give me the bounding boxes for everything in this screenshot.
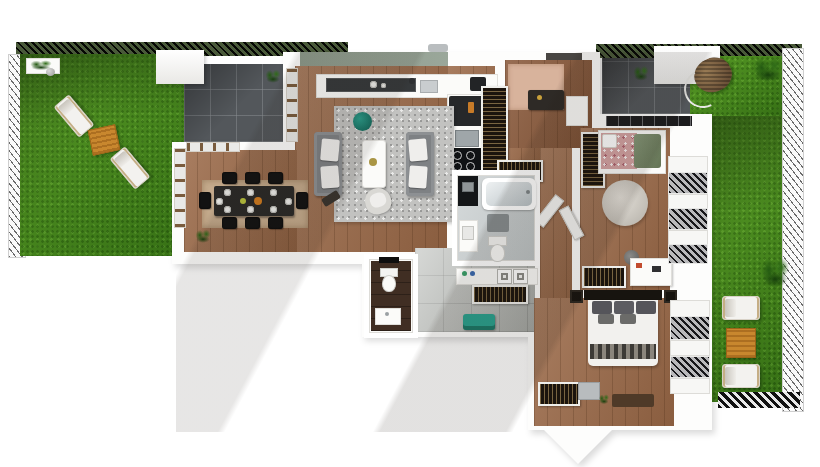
- dining-chair: [268, 172, 283, 184]
- dining-chair: [245, 217, 260, 229]
- fridge: [449, 96, 483, 126]
- laundry-item: [462, 271, 467, 276]
- window-sill: [670, 378, 710, 394]
- place-setting: [285, 198, 292, 205]
- dining-plant: [194, 228, 212, 244]
- round-shaggy-rug: [602, 180, 648, 226]
- dining-chair: [222, 172, 237, 184]
- green-blanket: [634, 134, 661, 168]
- wardrobe-rail-row: [472, 285, 528, 304]
- wc-basin: [375, 308, 401, 325]
- striped-throw: [590, 344, 656, 359]
- sink-second: [455, 130, 479, 147]
- sofa-cushion: [320, 138, 340, 161]
- laundry-item: [470, 271, 475, 276]
- vanity-basin: [462, 182, 474, 192]
- patio-glass-door: [286, 68, 298, 142]
- place-setting: [247, 206, 254, 213]
- desk-item: [636, 263, 642, 268]
- wc-faucet: [385, 312, 389, 316]
- front-door: [546, 53, 582, 60]
- nightstand: [570, 290, 583, 303]
- place-setting: [224, 189, 231, 196]
- pillow: [614, 301, 634, 314]
- kids-pillow: [602, 134, 617, 148]
- sofa-cushion: [408, 165, 427, 188]
- sage-feature-wall: [300, 52, 448, 66]
- door-mat: [612, 394, 654, 407]
- kids-wardrobe-low: [582, 266, 626, 288]
- bottle: [468, 102, 474, 113]
- place-setting: [224, 206, 231, 213]
- teal-pouf: [353, 112, 372, 131]
- serving-dish: [240, 198, 246, 204]
- table-plant: [369, 158, 377, 166]
- washer: [497, 269, 512, 284]
- vent: [428, 44, 448, 52]
- place-setting: [247, 189, 254, 196]
- window-blind: [670, 356, 710, 378]
- master-dresser: [538, 382, 580, 406]
- entry-console: [528, 90, 564, 110]
- window-blind: [670, 316, 710, 340]
- gray-cabinet: [578, 382, 600, 400]
- bath-mat: [487, 214, 509, 232]
- sofa-right: [406, 132, 434, 196]
- sofa-left: [314, 132, 342, 196]
- garden-glass-door: [174, 148, 186, 228]
- dining-chair: [199, 192, 211, 209]
- bathtub-basin: [486, 182, 532, 206]
- faucet: [409, 78, 415, 84]
- patio-window: [186, 142, 240, 152]
- place-setting: [270, 189, 277, 196]
- floor-plan-render: [0, 0, 820, 467]
- bath-drain: [526, 190, 530, 194]
- serving-dish: [254, 197, 262, 205]
- bowl: [381, 83, 386, 88]
- place-setting: [216, 198, 223, 205]
- place-setting: [270, 206, 277, 213]
- window-blind: [668, 244, 708, 264]
- headboard: [584, 290, 662, 300]
- teal-bench: [463, 314, 495, 330]
- brass-object: [537, 95, 542, 100]
- bowl: [370, 81, 377, 88]
- burner: [453, 151, 462, 160]
- dryer: [513, 269, 528, 284]
- wc-toilet: [382, 275, 396, 292]
- sofa-cushion: [320, 165, 339, 188]
- dining-chair: [245, 172, 260, 184]
- window-sill: [670, 340, 710, 356]
- clerestory-window: [606, 116, 692, 126]
- pillow: [636, 301, 656, 314]
- pillow: [598, 314, 614, 324]
- kitchen-sink: [420, 80, 438, 93]
- pillow: [620, 314, 636, 324]
- vanity-sink: [462, 226, 474, 240]
- entry-cabinet: [566, 96, 588, 126]
- living-rug: [334, 106, 454, 222]
- wc-shelf: [379, 257, 399, 263]
- sofa-cushion: [408, 138, 428, 161]
- dining-chair: [222, 217, 237, 229]
- window-blind: [668, 208, 708, 230]
- window-blind: [668, 172, 708, 194]
- burner: [466, 151, 475, 160]
- dining-chair: [296, 192, 308, 209]
- desk-item: [652, 266, 661, 272]
- bedroom-plant: [598, 393, 610, 405]
- dining-chair: [268, 217, 283, 229]
- toilet: [490, 244, 505, 262]
- pillow: [592, 301, 612, 314]
